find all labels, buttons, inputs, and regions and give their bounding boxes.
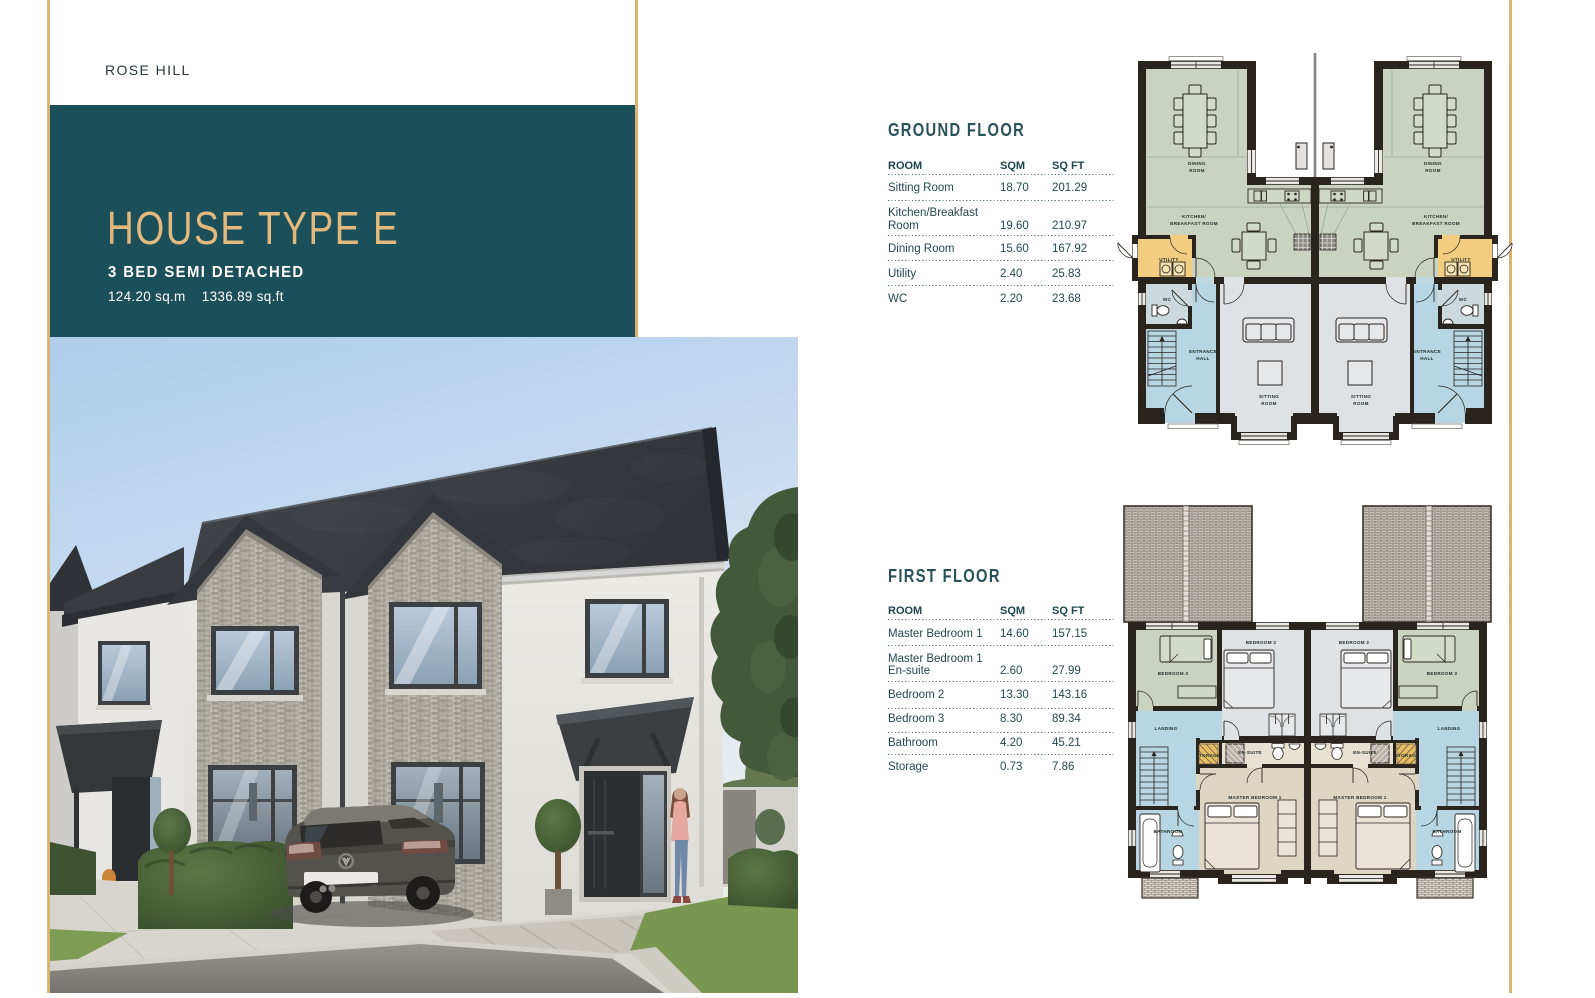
svg-text:BREAKFAST ROOM: BREAKFAST ROOM xyxy=(1170,221,1218,226)
svg-text:BATHROOM: BATHROOM xyxy=(1432,829,1461,834)
svg-text:ENTRANCE: ENTRANCE xyxy=(1189,349,1217,354)
svg-text:EN-SUITE: EN-SUITE xyxy=(1238,750,1262,755)
svg-text:LANDING: LANDING xyxy=(1437,726,1460,731)
svg-text:ROOM: ROOM xyxy=(1261,401,1277,406)
svg-text:BEDROOM 2: BEDROOM 2 xyxy=(1246,640,1277,645)
svg-text:MASTER BEDROOM 1: MASTER BEDROOM 1 xyxy=(1333,795,1386,800)
svg-text:HALL: HALL xyxy=(1196,356,1209,361)
svg-text:LANDING: LANDING xyxy=(1154,726,1177,731)
svg-text:DINING: DINING xyxy=(1188,161,1206,166)
svg-text:WC: WC xyxy=(1459,297,1468,302)
svg-text:BEDROOM 2: BEDROOM 2 xyxy=(1339,640,1370,645)
svg-text:KITCHEN/: KITCHEN/ xyxy=(1182,214,1207,219)
svg-text:ENTRANCE: ENTRANCE xyxy=(1413,349,1441,354)
svg-text:ROOM: ROOM xyxy=(1189,168,1205,173)
svg-text:EN-SUITE: EN-SUITE xyxy=(1353,750,1377,755)
svg-text:STORAGE: STORAGE xyxy=(1196,753,1221,758)
svg-text:ROOM: ROOM xyxy=(1353,401,1369,406)
svg-text:WC: WC xyxy=(1163,297,1172,302)
svg-text:UTILITY: UTILITY xyxy=(1159,257,1178,262)
svg-text:BEDROOM 3: BEDROOM 3 xyxy=(1427,671,1458,676)
svg-text:BATHROOM: BATHROOM xyxy=(1153,829,1182,834)
svg-text:MASTER BEDROOM 1: MASTER BEDROOM 1 xyxy=(1228,795,1281,800)
svg-text:BEDROOM 3: BEDROOM 3 xyxy=(1158,671,1189,676)
svg-text:SITTING: SITTING xyxy=(1259,394,1279,399)
svg-text:STORAGE: STORAGE xyxy=(1395,753,1420,758)
svg-text:HALL: HALL xyxy=(1420,356,1433,361)
svg-text:ROOM: ROOM xyxy=(1425,168,1441,173)
svg-text:SITTING: SITTING xyxy=(1351,394,1371,399)
svg-text:BREAKFAST ROOM: BREAKFAST ROOM xyxy=(1412,221,1460,226)
svg-text:KITCHEN/: KITCHEN/ xyxy=(1424,214,1449,219)
svg-text:UTILITY: UTILITY xyxy=(1451,257,1470,262)
svg-text:DINING: DINING xyxy=(1424,161,1442,166)
